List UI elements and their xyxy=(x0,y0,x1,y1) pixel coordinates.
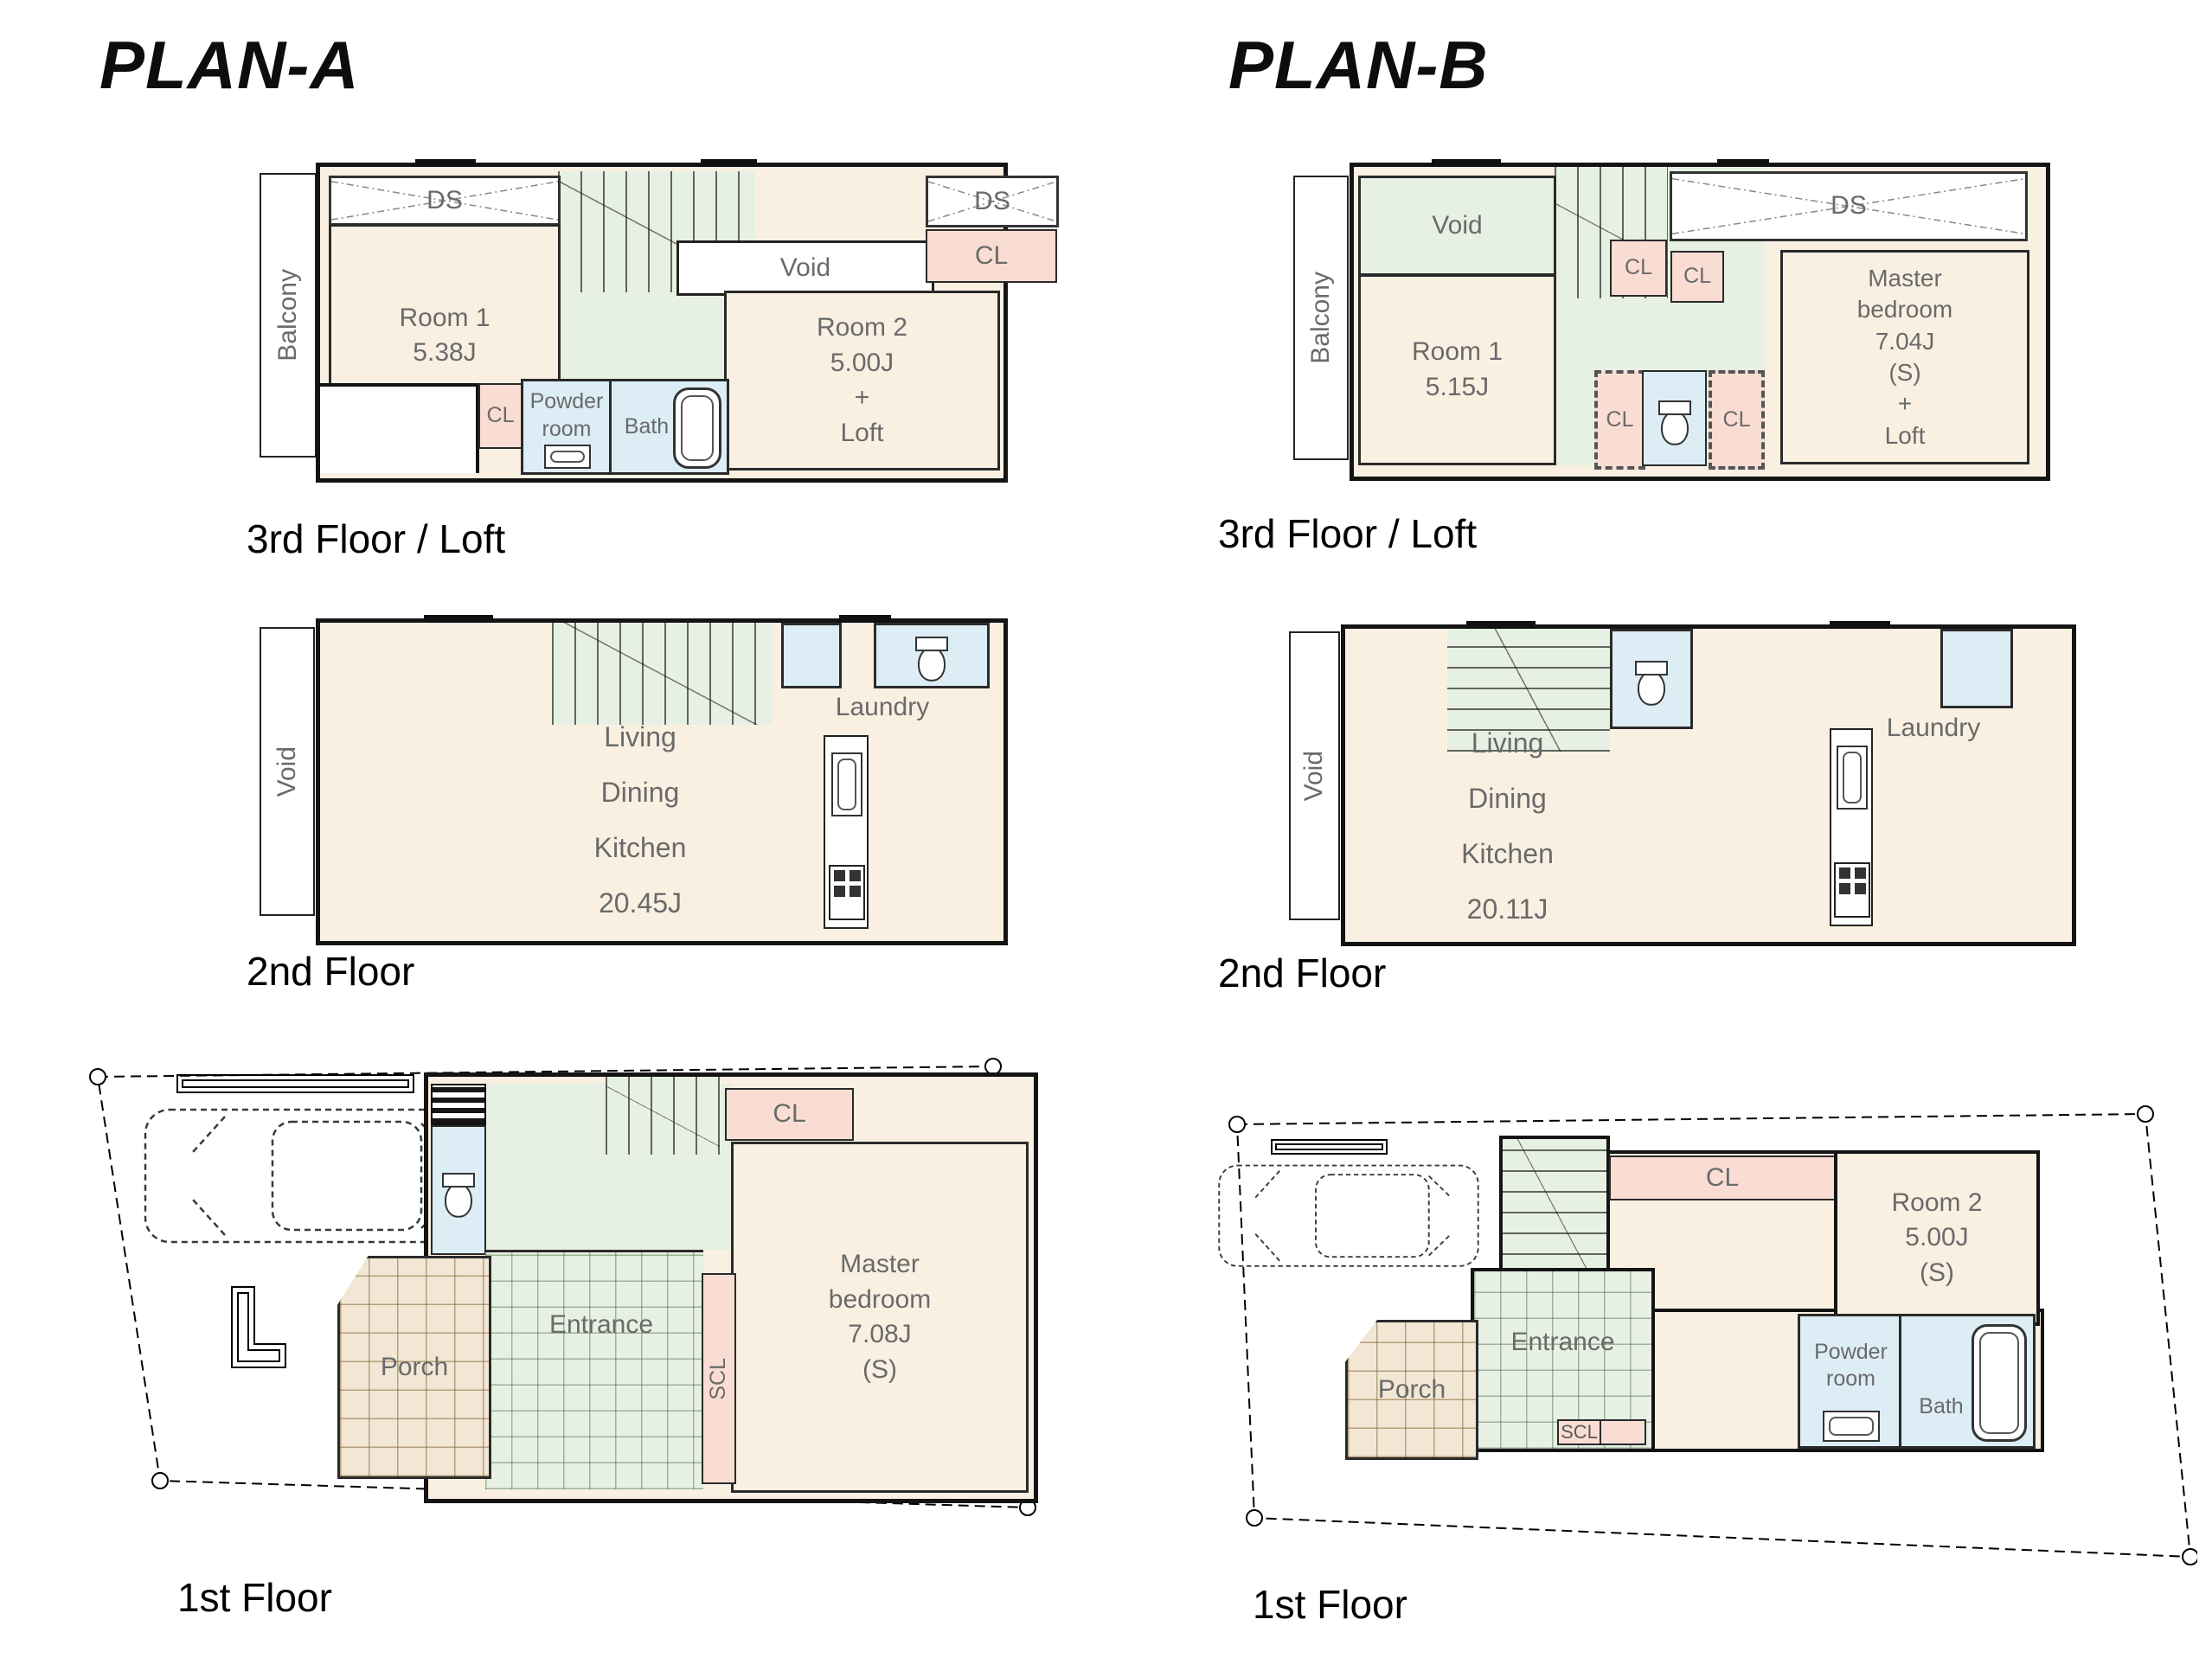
porch-label: Porch xyxy=(1378,1373,1446,1408)
plan-b-floor3: Balcony Void Room 1 5.15J DS CL CL Maste… xyxy=(1289,163,2050,476)
window-mark xyxy=(1466,621,1536,629)
entrance xyxy=(485,1250,703,1489)
void-label: Void xyxy=(270,746,305,797)
ldk-label: Living Dining Kitchen 20.11J xyxy=(1461,715,1554,937)
void-strip: Void xyxy=(1289,631,1340,920)
toilet-icon xyxy=(1644,372,1705,464)
entrance-label: Entrance xyxy=(549,1308,653,1343)
balcony-label: Balcony xyxy=(1304,272,1339,364)
duct-space: DS xyxy=(926,176,1059,227)
void-box: Void xyxy=(676,240,934,296)
window-mark xyxy=(424,615,493,623)
plan-a-floor1-site: CL Master bedroom 7.08J (S) Entrance SCL… xyxy=(74,1051,1047,1570)
closet: CL xyxy=(1670,251,1724,303)
staircase xyxy=(1499,1136,1610,1279)
balcony-label: Balcony xyxy=(271,269,306,362)
staircase xyxy=(606,1077,720,1155)
room1-label: Room 1 5.38J xyxy=(399,301,490,371)
ds-label: DS xyxy=(928,178,1056,225)
cl-label: CL xyxy=(1606,406,1634,433)
master-bedroom: Master bedroom 7.08J (S) xyxy=(731,1142,1029,1493)
void-label: Void xyxy=(1432,208,1482,244)
entrance-caption: Entrance xyxy=(523,1309,679,1341)
parking-stopper-icon xyxy=(232,1287,285,1367)
closet: CL xyxy=(926,229,1057,283)
window-mark xyxy=(839,615,891,623)
master-bedroom-label: Master bedroom 7.04J (S) + Loft xyxy=(1857,263,1953,451)
balcony: Balcony xyxy=(1293,176,1349,460)
sink-icon xyxy=(544,445,591,469)
scl-label: SCL xyxy=(1561,1420,1598,1444)
void-room: Void xyxy=(1358,176,1556,276)
ds-label: DS xyxy=(331,178,558,223)
cl-label: CL xyxy=(487,402,515,429)
plan-b-floor1-site: CL Room 2 5.00J (S) Entrance SCL Porch P… xyxy=(1207,1088,2197,1603)
plan-a-floor2-label: 2nd Floor xyxy=(247,948,414,995)
shoe-closet-box xyxy=(1600,1419,1646,1445)
void-strip: Void xyxy=(260,627,315,916)
cl-label: CL xyxy=(1706,1161,1739,1196)
stove-icon xyxy=(1834,862,1870,918)
scl-label: SCL xyxy=(705,1358,732,1400)
plan-a-floor1-label: 1st Floor xyxy=(177,1574,332,1621)
shoe-closet: SCL xyxy=(1557,1419,1601,1445)
room1-label: Room 1 5.15J xyxy=(1412,335,1503,405)
window-mark xyxy=(1717,159,1769,167)
ldk-label: Living Dining Kitchen 20.45J xyxy=(594,709,687,931)
car-icon xyxy=(1219,1166,1478,1266)
plan-a-floor3: Balcony DS Room 1 5.38J Void DS CL Room … xyxy=(255,163,999,476)
closet: CL xyxy=(1609,1155,1836,1200)
laundry-room xyxy=(1940,629,2013,708)
closet: CL xyxy=(478,383,523,449)
closet-dashed: CL xyxy=(1594,370,1645,470)
cl-label: CL xyxy=(1625,254,1652,281)
cl-label: CL xyxy=(773,1097,805,1132)
master-bedroom-label: Master bedroom 7.08J (S) xyxy=(829,1247,931,1387)
porch-label: Porch xyxy=(381,1350,448,1386)
ldk-room: Living Dining Kitchen 20.45J xyxy=(528,722,753,917)
cl-label: CL xyxy=(1723,406,1751,433)
kitchen-counter xyxy=(824,735,869,929)
laundry-caption: Laundry xyxy=(1856,711,2011,746)
porch: Porch xyxy=(337,1256,491,1479)
window-mark xyxy=(415,159,476,167)
toilet-icon xyxy=(876,625,987,686)
window-mark xyxy=(1830,621,1890,629)
bathroom: Bath xyxy=(609,379,729,475)
duct-space: DS xyxy=(1670,171,2028,241)
bathroom: Bath xyxy=(1899,1314,2036,1449)
closet: CL xyxy=(725,1088,854,1141)
kitchen-sink-icon xyxy=(831,752,862,816)
toilet-room xyxy=(1610,629,1693,729)
toilet-room xyxy=(1642,370,1707,466)
plan-b-title: PLAN-B xyxy=(1228,26,1489,105)
room2-label: Room 2 5.00J (S) xyxy=(1891,1186,1982,1291)
plan-a-floor2: Void Laundry Living Dining Kitchen 20.45… xyxy=(255,618,999,943)
toilet-icon xyxy=(433,1127,484,1253)
bathtub-icon xyxy=(673,387,721,469)
void-label: Void xyxy=(780,251,830,286)
kitchen-sink-icon xyxy=(1837,746,1868,810)
room2: Room 2 5.00J (S) xyxy=(1834,1150,2040,1326)
sink-icon xyxy=(1823,1411,1880,1442)
entry-steps xyxy=(431,1084,486,1125)
kitchen-counter xyxy=(1830,728,1873,926)
closet: CL xyxy=(1610,240,1667,297)
toilet-icon xyxy=(1613,631,1690,727)
powder-room: Powder room xyxy=(1798,1314,1904,1449)
laundry-caption: Laundry xyxy=(805,690,960,725)
plan-b-floor1-label: 1st Floor xyxy=(1253,1581,1407,1628)
bathtub-icon xyxy=(1972,1324,2027,1442)
master-bedroom: Master bedroom 7.04J (S) + Loft xyxy=(1780,250,2029,464)
void-label: Void xyxy=(1297,751,1332,801)
cl-label: CL xyxy=(1683,263,1711,290)
plan-b-floor2: Void Laundry Living Dining Kitchen 20.11… xyxy=(1289,624,2068,946)
window-mark xyxy=(701,159,757,167)
room2: Room 2 5.00J + Loft xyxy=(724,291,1000,471)
building-notch xyxy=(320,383,479,473)
laundry-label: Laundry xyxy=(836,690,929,726)
plan-a-floor3-building: DS Room 1 5.38J Void DS CL Room 2 5.00J … xyxy=(316,163,1008,483)
powder-room: Powder room xyxy=(521,379,612,475)
ds-label: DS xyxy=(1672,174,2025,239)
balcony: Balcony xyxy=(260,173,317,458)
plan-b-floor2-label: 2nd Floor xyxy=(1218,950,1386,996)
plan-a-floor3-label: 3rd Floor / Loft xyxy=(247,515,505,562)
duct-space: DS xyxy=(329,176,561,226)
plan-a-floor1-building: CL Master bedroom 7.08J (S) Entrance SCL xyxy=(424,1072,1038,1503)
room2-label: Room 2 5.00J + Loft xyxy=(817,310,907,451)
closet-dashed: CL xyxy=(1709,370,1765,470)
cl-label: CL xyxy=(975,239,1008,274)
plan-b-floor3-building: Void Room 1 5.15J DS CL CL Master bedroo… xyxy=(1350,163,2050,481)
toilet-room xyxy=(874,623,990,688)
room1: Room 1 5.15J xyxy=(1358,274,1556,465)
ldk-room: Living Dining Kitchen 20.11J xyxy=(1397,728,1618,923)
shoe-closet: SCL xyxy=(702,1273,736,1484)
window-mark xyxy=(1432,159,1501,167)
plan-a-title: PLAN-A xyxy=(99,26,360,105)
plan-a-floor2-building: Laundry Living Dining Kitchen 20.45J xyxy=(316,618,1008,945)
laundry-label: Laundry xyxy=(1887,711,1980,746)
plan-b-floor2-building: Laundry Living Dining Kitchen 20.11J xyxy=(1341,624,2076,946)
porch: Porch xyxy=(1345,1320,1478,1460)
stove-icon xyxy=(829,865,865,920)
entrance-label: Entrance xyxy=(1510,1325,1614,1395)
toilet-room xyxy=(431,1125,486,1255)
plan-b-floor3-label: 3rd Floor / Loft xyxy=(1218,510,1477,557)
laundry-room xyxy=(781,623,842,688)
